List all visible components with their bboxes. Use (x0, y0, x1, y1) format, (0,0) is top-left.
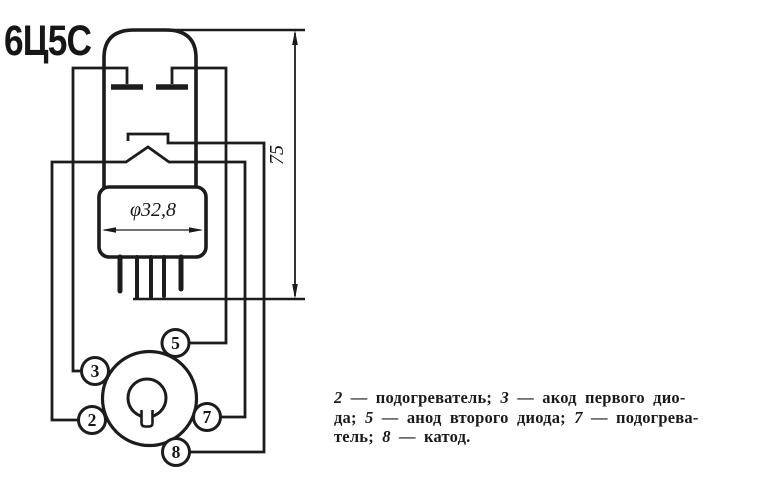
socket-key-tab (142, 410, 153, 427)
caption-line-2: да; 5 — анод второго диода; 7 — подогрев… (334, 408, 780, 428)
scanned-tube-datasheet-page: 6Ц5С φ32,8 (0, 0, 780, 478)
pin-8-label: 8 (172, 442, 181, 462)
glass-envelope-outline (104, 30, 196, 188)
diameter-label: φ32,8 (130, 199, 176, 221)
tube-outline-and-pinout-drawing: φ32,8 75 5 3 2 (0, 0, 320, 478)
base-pinout-view: 5 3 2 7 8 (79, 330, 221, 466)
pin-7-label: 7 (203, 407, 212, 427)
base-pins (120, 257, 181, 298)
arrowhead-up-icon (292, 30, 298, 45)
caption-line-1: 2 — подогреватель; 3 — акод первого дио- (334, 388, 780, 408)
pin-3-label: 3 (91, 361, 100, 381)
pin-5-label: 5 (171, 333, 180, 353)
caption-line-3: тель; 8 — катод. (334, 427, 780, 447)
tube-base-outline (99, 187, 206, 257)
arrowhead-down-icon (292, 284, 298, 299)
height-label: 75 (266, 145, 288, 165)
pin-2-label: 2 (88, 410, 97, 430)
pin-legend-caption: 2 — подогреватель; 3 — акод первого дио-… (334, 388, 780, 447)
